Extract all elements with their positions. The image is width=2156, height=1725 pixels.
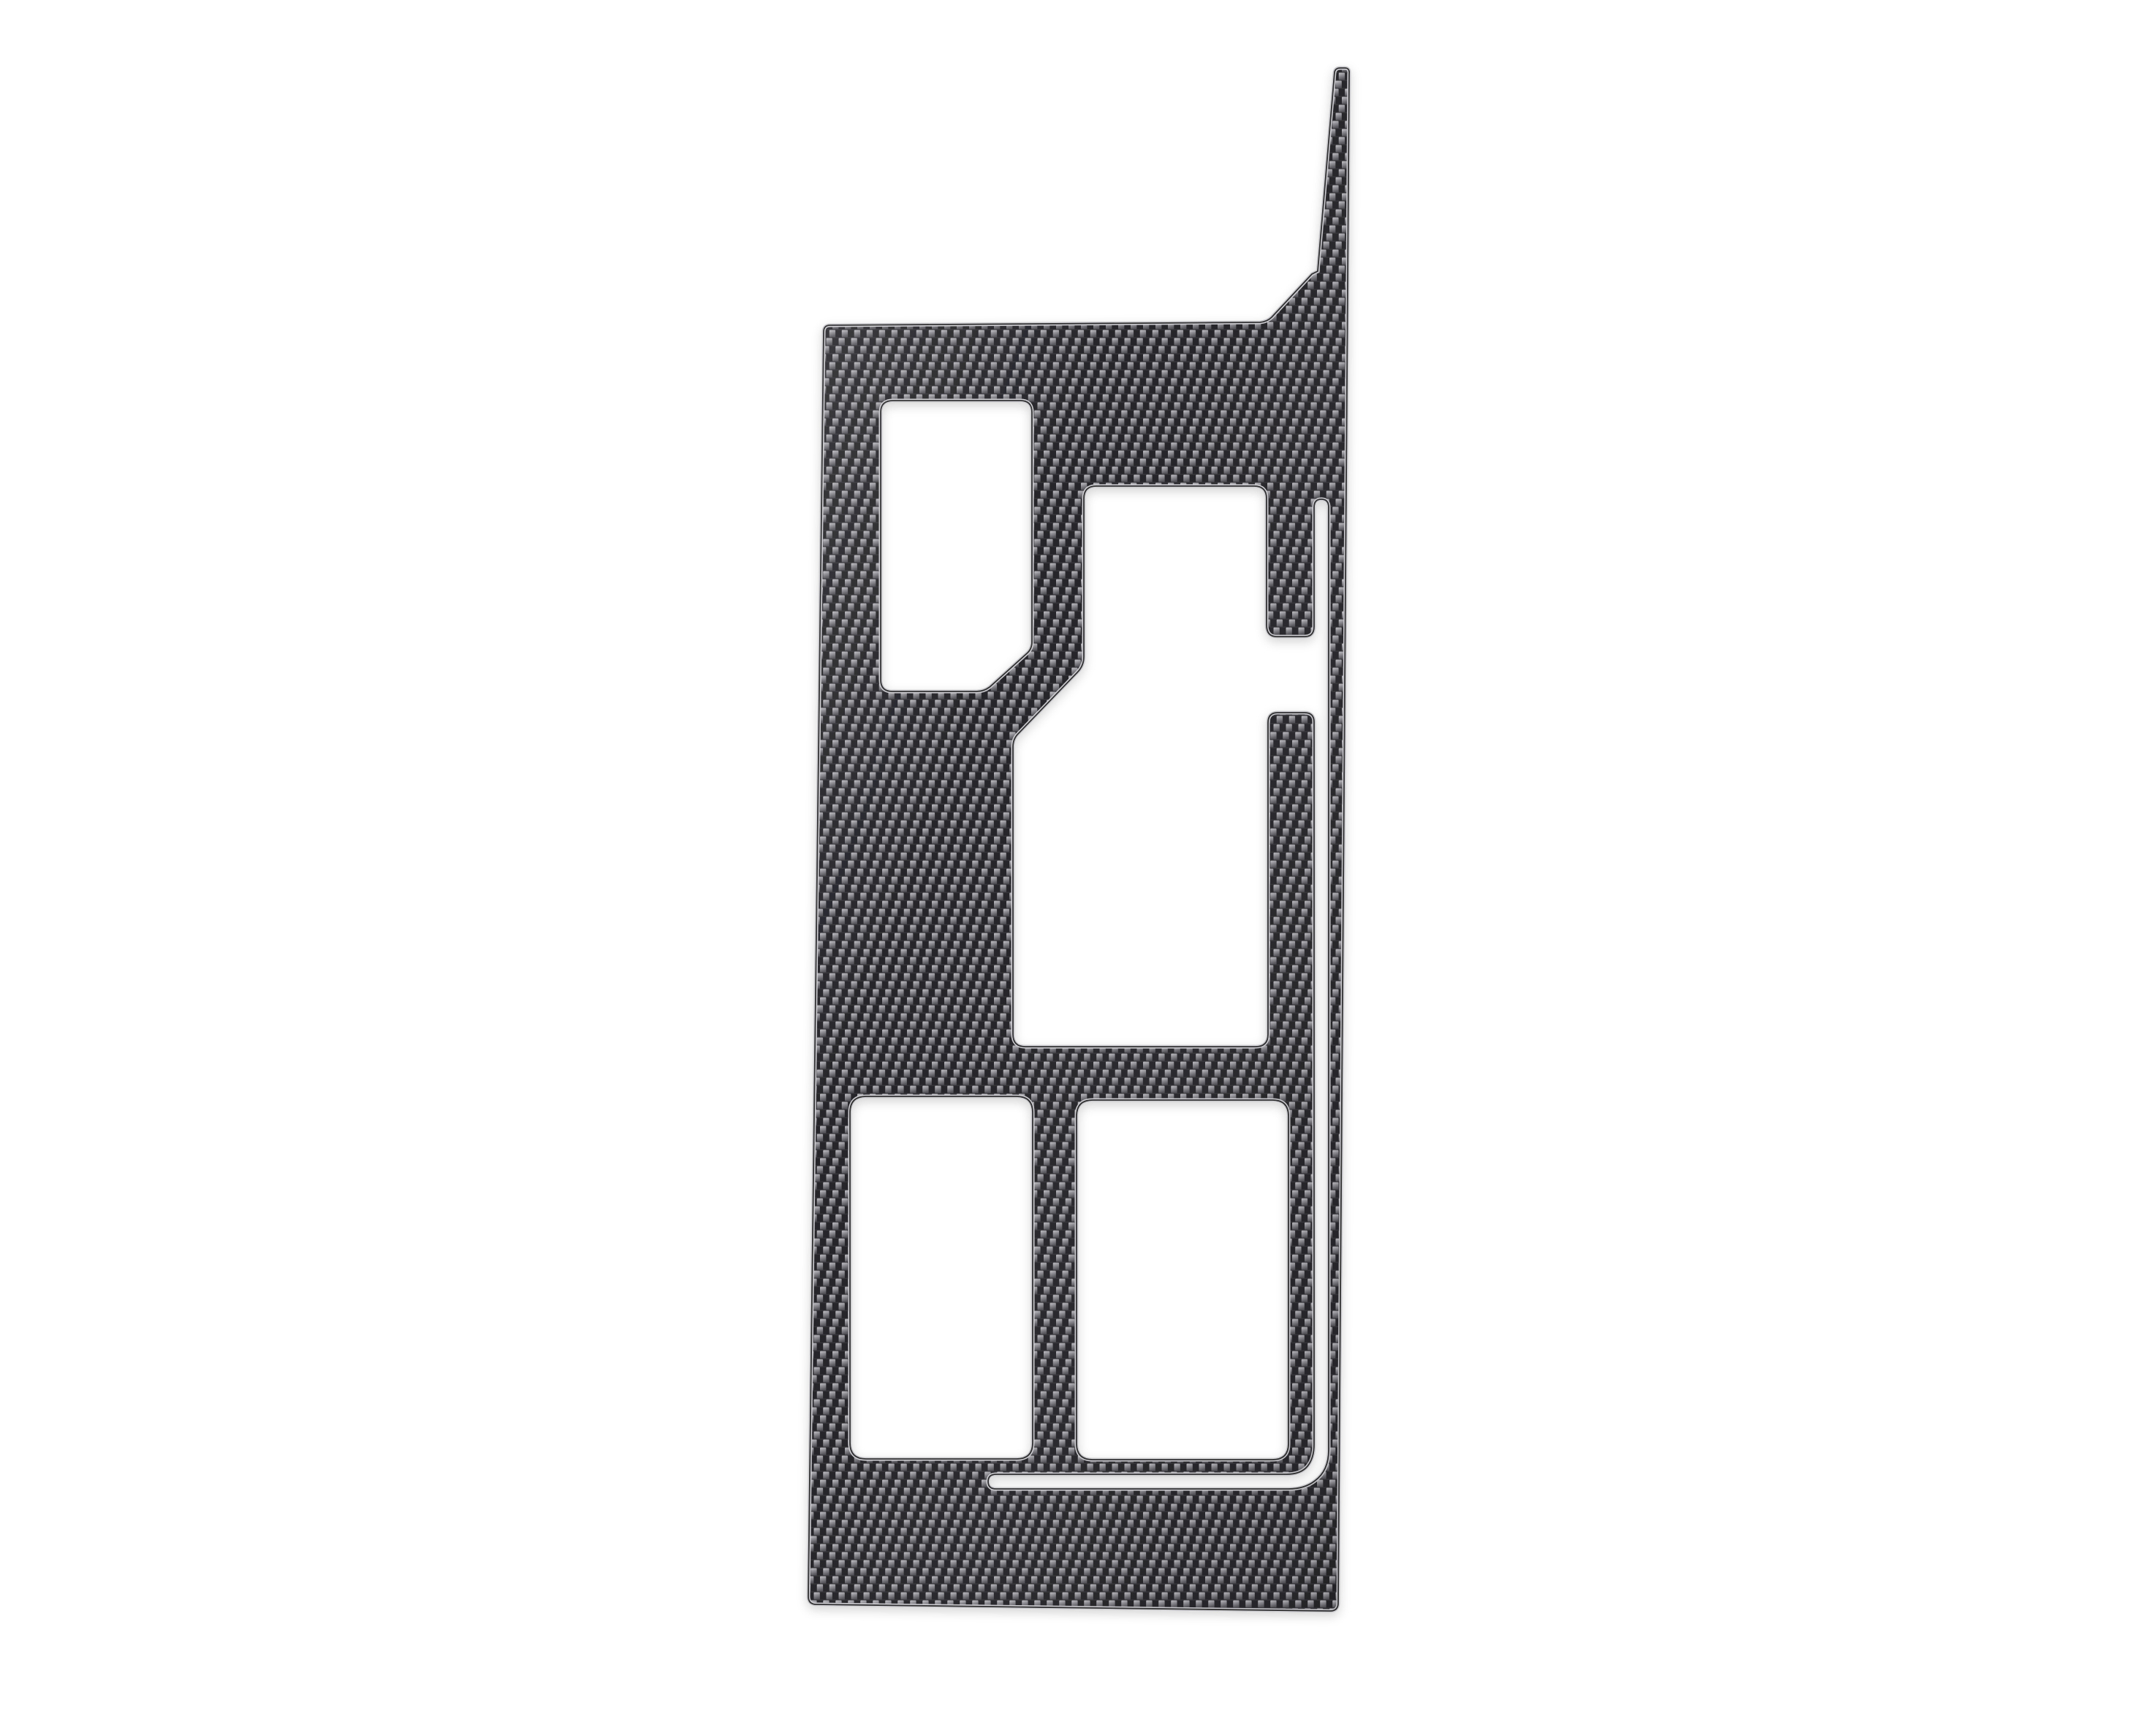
carbon-trim-svg: Carbon fiber center console gear shift p… xyxy=(0,0,2156,1725)
panel-sheen xyxy=(808,68,1349,1611)
product-photo: Carbon fiber center console gear shift p… xyxy=(0,0,2156,1725)
trim-panel xyxy=(808,68,1349,1611)
